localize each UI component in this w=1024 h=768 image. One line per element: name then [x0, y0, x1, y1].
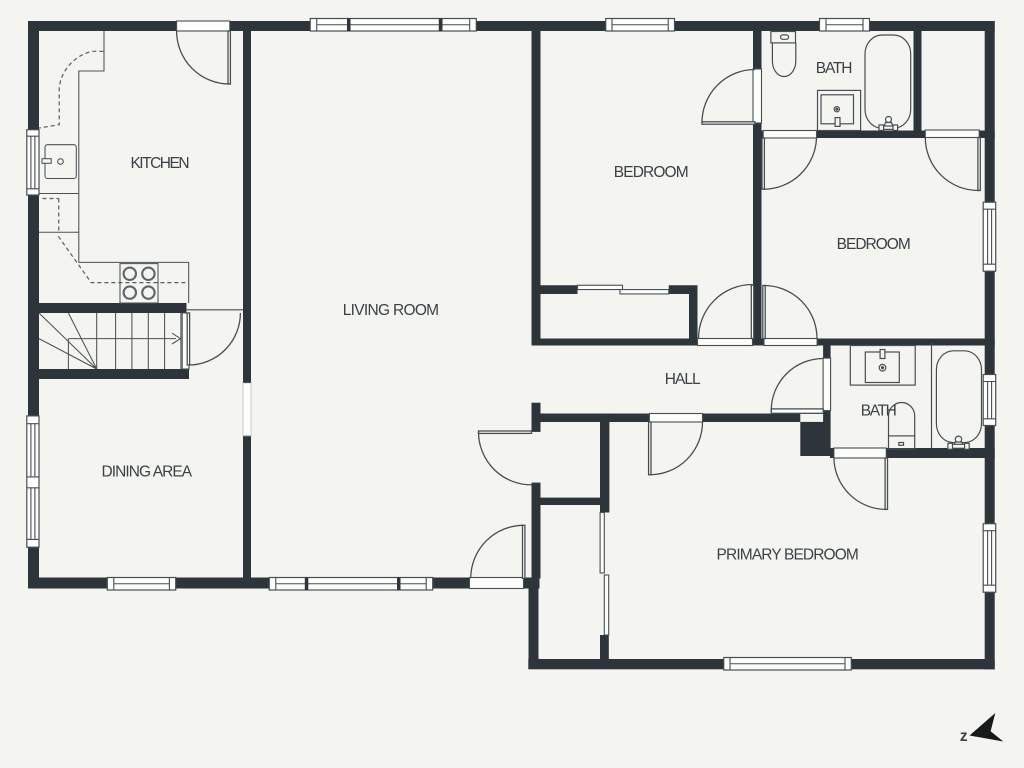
svg-text:BEDROOM: BEDROOM — [614, 164, 690, 181]
svg-text:z: z — [960, 728, 968, 745]
svg-text:BATH: BATH — [861, 402, 898, 419]
svg-text:LIVING ROOM: LIVING ROOM — [343, 302, 440, 319]
svg-text:KITCHEN: KITCHEN — [130, 155, 190, 172]
svg-text:HALL: HALL — [665, 371, 702, 388]
svg-text:DINING AREA: DINING AREA — [101, 464, 192, 481]
svg-text:BATH: BATH — [816, 60, 853, 77]
svg-text:BEDROOM: BEDROOM — [837, 236, 912, 253]
svg-text:PRIMARY BEDROOM: PRIMARY BEDROOM — [717, 546, 860, 563]
